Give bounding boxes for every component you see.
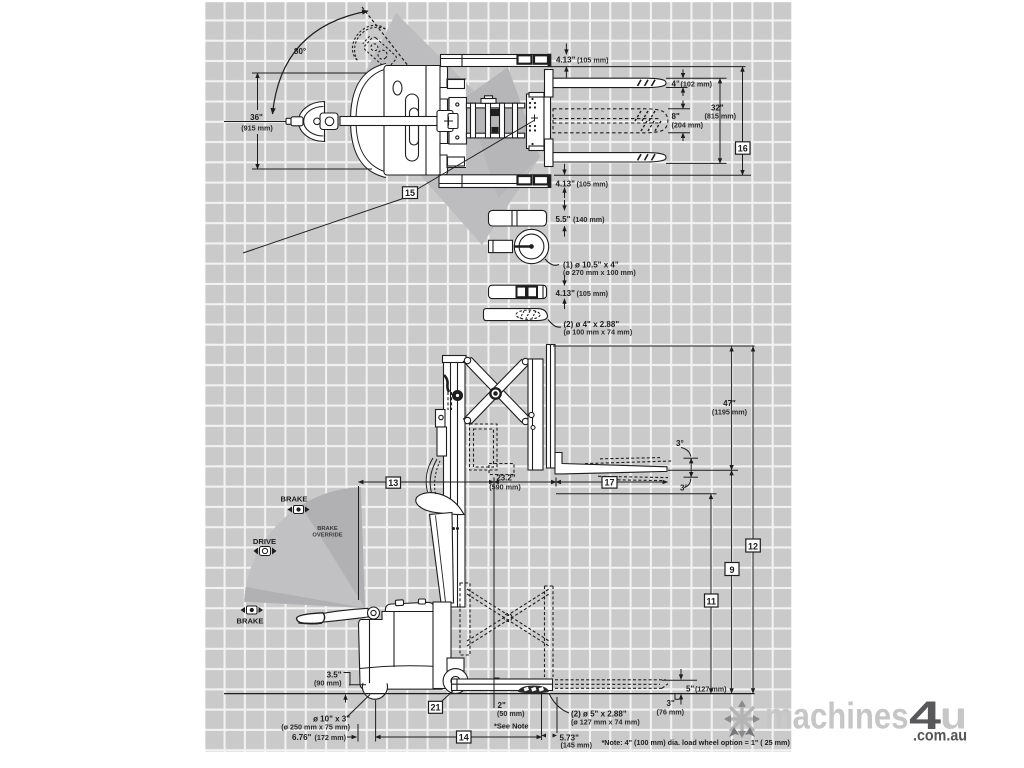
svg-text:.com.au: .com.au xyxy=(913,728,967,745)
svg-text:21: 21 xyxy=(430,703,440,713)
svg-text:4": 4" xyxy=(672,80,680,89)
svg-text:14: 14 xyxy=(459,732,469,742)
svg-text:(127 mm): (127 mm) xyxy=(695,685,727,694)
svg-text:(204 mm): (204 mm) xyxy=(672,121,704,130)
svg-text:*Note: 4" (100 mm) dia. load w: *Note: 4" (100 mm) dia. load wheel optio… xyxy=(602,738,791,747)
svg-text:(76 mm): (76 mm) xyxy=(657,708,685,717)
svg-text:15: 15 xyxy=(405,188,415,198)
svg-text:9: 9 xyxy=(729,565,734,575)
svg-text:(ø 100 mm x 74 mm): (ø 100 mm x 74 mm) xyxy=(564,328,633,337)
svg-text:3°: 3° xyxy=(676,439,684,448)
svg-text:80°: 80° xyxy=(294,47,306,56)
svg-text:(172 mm): (172 mm) xyxy=(315,733,347,742)
svg-text:BRAKE: BRAKE xyxy=(236,617,263,626)
svg-text:6.76": 6.76" xyxy=(292,733,312,742)
svg-text:OVERRIDE: OVERRIDE xyxy=(312,533,342,539)
svg-text:4.13": 4.13" xyxy=(556,56,576,65)
svg-text:(815 mm): (815 mm) xyxy=(705,112,737,121)
svg-text:13: 13 xyxy=(388,478,398,488)
svg-text:(ø 250 mm x 75 mm): (ø 250 mm x 75 mm) xyxy=(281,723,350,732)
svg-text:5.5": 5.5" xyxy=(556,215,571,224)
svg-text:(590 mm): (590 mm) xyxy=(489,483,521,492)
svg-text:3°: 3° xyxy=(680,484,688,493)
svg-text:BRAKE: BRAKE xyxy=(280,495,307,504)
svg-text:(ø 127 mm x 74 mm): (ø 127 mm x 74 mm) xyxy=(571,718,640,727)
svg-text:8": 8" xyxy=(672,112,680,121)
svg-text:4.13": 4.13" xyxy=(556,179,576,188)
svg-text:5": 5" xyxy=(686,685,694,694)
svg-text:DRIVE: DRIVE xyxy=(253,537,276,546)
svg-text:*See Note: *See Note xyxy=(494,722,529,731)
svg-text:12: 12 xyxy=(748,541,758,551)
svg-text:(105 mm): (105 mm) xyxy=(577,289,609,298)
svg-text:(50 mm): (50 mm) xyxy=(497,709,525,718)
svg-text:11: 11 xyxy=(707,596,717,606)
svg-text:(102 mm): (102 mm) xyxy=(681,80,713,89)
svg-text:machines: machines xyxy=(765,696,909,737)
svg-text:(140 mm): (140 mm) xyxy=(573,215,605,224)
svg-text:23.2": 23.2" xyxy=(496,474,516,483)
svg-text:16: 16 xyxy=(738,143,748,153)
svg-text:(ø 270 mm x 100 mm): (ø 270 mm x 100 mm) xyxy=(563,268,636,277)
svg-text:(105 mm): (105 mm) xyxy=(577,179,609,188)
svg-text:(90 mm): (90 mm) xyxy=(314,679,342,688)
svg-text:(145 mm): (145 mm) xyxy=(561,741,593,750)
svg-text:BRAKE: BRAKE xyxy=(317,526,338,532)
svg-text:(915 mm): (915 mm) xyxy=(241,124,273,133)
svg-text:36": 36" xyxy=(250,113,263,122)
svg-text:4.13": 4.13" xyxy=(556,289,576,298)
svg-text:(105 mm): (105 mm) xyxy=(577,56,609,65)
svg-text:17: 17 xyxy=(604,478,614,488)
svg-text:(1195 mm): (1195 mm) xyxy=(712,408,748,417)
